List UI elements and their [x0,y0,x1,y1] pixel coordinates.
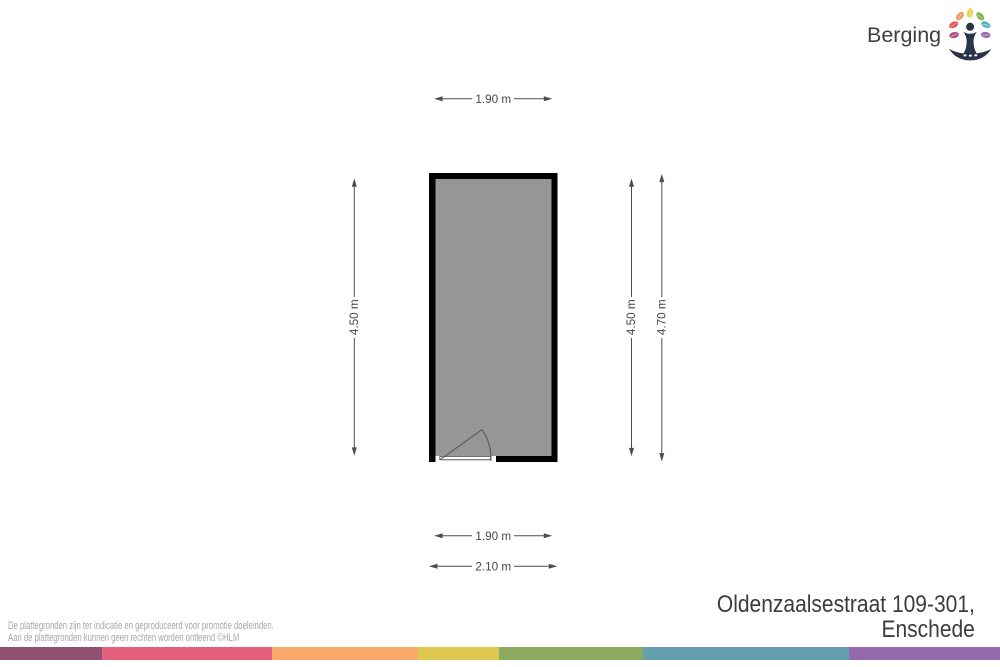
svg-text:4.50 m: 4.50 m [625,299,638,335]
svg-text:1.90 m: 1.90 m [475,93,511,106]
svg-text:2.10 m: 2.10 m [475,561,511,574]
svg-text:4.70 m: 4.70 m [655,299,668,335]
svg-text:1.90 m: 1.90 m [475,530,511,543]
svg-text:4.50 m: 4.50 m [348,299,361,335]
